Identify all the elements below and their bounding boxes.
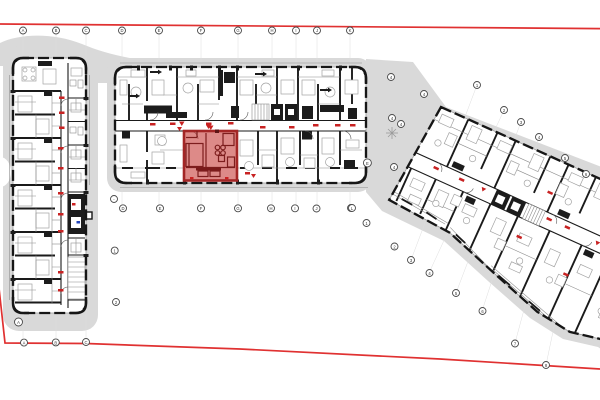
svg-text:H: H <box>270 28 273 33</box>
svg-text:C: C <box>84 340 87 345</box>
svg-text:D: D <box>120 28 123 33</box>
svg-text:A: A <box>17 320 20 325</box>
svg-text:A: A <box>22 28 25 33</box>
svg-text:D: D <box>121 206 124 211</box>
svg-text:K: K <box>349 28 352 33</box>
svg-text:E: E <box>366 161 369 166</box>
svg-text:G: G <box>236 28 239 33</box>
svg-text:I: I <box>295 28 296 33</box>
svg-text:C: C <box>84 28 87 33</box>
svg-text:F: F <box>200 206 203 211</box>
svg-text:H: H <box>269 206 272 211</box>
svg-text:J: J <box>315 206 317 211</box>
svg-text:B: B <box>55 28 58 33</box>
svg-text:I: I <box>294 206 295 211</box>
svg-text:B: B <box>54 340 57 345</box>
svg-text:E: E <box>159 206 162 211</box>
svg-text:F: F <box>200 28 203 33</box>
svg-text:J: J <box>316 28 318 33</box>
svg-text:G: G <box>236 206 239 211</box>
svg-text:E: E <box>158 28 161 33</box>
svg-text:A: A <box>23 341 26 346</box>
